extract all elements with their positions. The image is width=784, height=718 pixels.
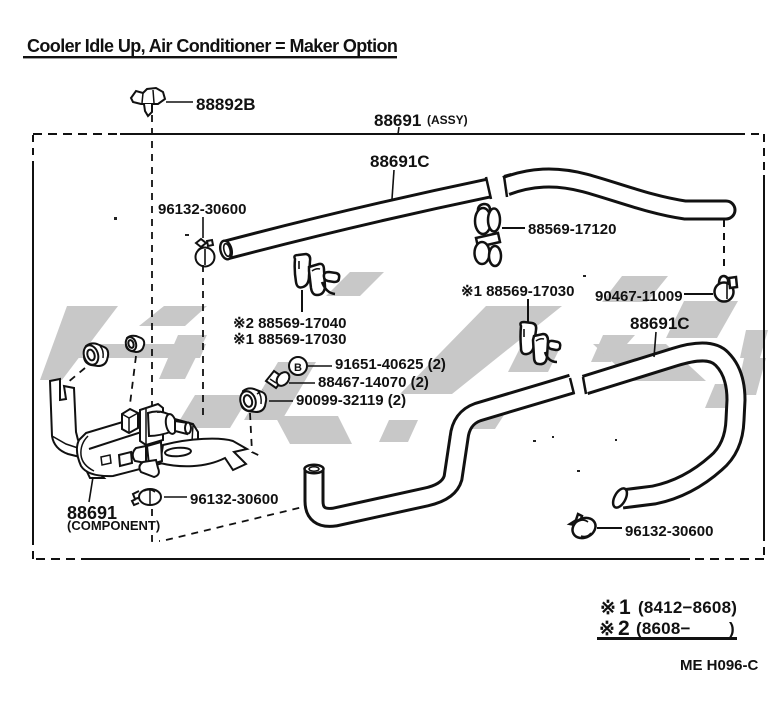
svg-text:88569-17120: 88569-17120 xyxy=(528,221,616,238)
svg-text:(8412−8608): (8412−8608) xyxy=(638,598,737,617)
svg-text:96132-30600: 96132-30600 xyxy=(158,201,246,218)
svg-text:2: 2 xyxy=(618,617,630,640)
svg-text:): ) xyxy=(729,619,735,638)
svg-text:※2 88569-17040: ※2 88569-17040 xyxy=(233,315,347,332)
svg-text:(8608−: (8608− xyxy=(636,619,691,638)
svg-text:Cooler Idle Up, Air Conditione: Cooler Idle Up, Air Conditioner = Maker … xyxy=(27,36,397,56)
svg-text:※1 88569-17030: ※1 88569-17030 xyxy=(461,283,575,300)
svg-text:B: B xyxy=(294,362,302,374)
svg-text:※1 88569-17030: ※1 88569-17030 xyxy=(233,331,347,348)
svg-text:88691C: 88691C xyxy=(370,152,430,171)
svg-text:88467-14070 (2): 88467-14070 (2) xyxy=(318,374,429,391)
svg-text:91651-40625 (2): 91651-40625 (2) xyxy=(335,356,446,373)
svg-text:(COMPONENT): (COMPONENT) xyxy=(67,518,160,533)
svg-text:90467-11009: 90467-11009 xyxy=(595,288,683,305)
svg-text:90099-32119 (2): 90099-32119 (2) xyxy=(296,392,406,409)
svg-text:88691C: 88691C xyxy=(630,314,690,333)
svg-text:※: ※ xyxy=(599,619,615,640)
svg-text:ME H096-C: ME H096-C xyxy=(680,657,759,674)
svg-text:96132-30600: 96132-30600 xyxy=(190,491,278,508)
svg-text:1: 1 xyxy=(619,596,631,619)
svg-text:88892B: 88892B xyxy=(196,95,256,114)
svg-text:※: ※ xyxy=(600,598,616,619)
svg-text:(ASSY): (ASSY) xyxy=(427,113,468,127)
svg-text:96132-30600: 96132-30600 xyxy=(625,523,713,540)
svg-text:88691: 88691 xyxy=(374,111,421,130)
